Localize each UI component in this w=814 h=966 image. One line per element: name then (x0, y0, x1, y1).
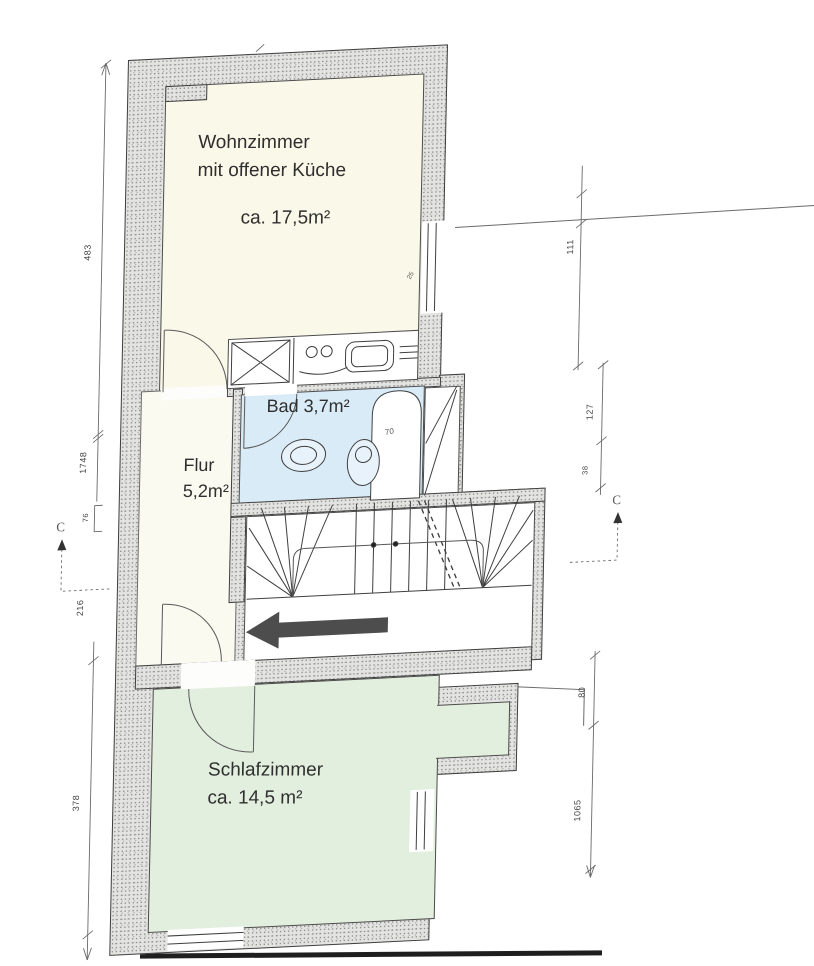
door-arc-wohnzimmer (163, 327, 228, 392)
direction-arrow (246, 606, 389, 650)
label-flur: Flur 5,2m² (183, 452, 230, 504)
door-arcs (155, 324, 298, 757)
building: Wohnzimmer mit offener Küche ca. 17,5m² … (128, 60, 129, 61)
flur-name: Flur (183, 452, 230, 478)
dim-378: 378 (71, 786, 83, 821)
section-line-left (61, 547, 112, 591)
burner-icon (321, 346, 332, 358)
washbasin-icon (281, 438, 326, 472)
dim-line-left-upper (92, 60, 111, 502)
label-wohnzimmer: Wohnzimmer mit offener Küche (197, 129, 347, 184)
burner-icon (306, 346, 317, 358)
wohnzimmer-name-line2: mit offener Küche (197, 156, 346, 184)
dim-76: 76 (81, 500, 93, 535)
dim-line-right-mid (595, 361, 608, 496)
kitchen-fixtures (231, 332, 418, 387)
bathtub-icon (371, 390, 422, 501)
wohnzimmer-name-line1: Wohnzimmer (198, 129, 347, 157)
door-arc-flur (161, 601, 222, 664)
section-marker-left: C (56, 519, 65, 535)
section-arrow-left (57, 539, 66, 550)
label-schlafzimmer: Schlafzimmer ca. 14,5 m² (207, 756, 323, 811)
stair-direction-dashed (417, 499, 463, 591)
door-arc-schlafzimmer (187, 686, 254, 755)
schlafzimmer-name: Schlafzimmer (208, 756, 324, 784)
label-bad: Bad 3,7m² (266, 393, 350, 419)
dim-38: 38 (580, 453, 592, 488)
dim-216: 216 (75, 591, 87, 626)
sink-icon (345, 340, 394, 372)
exterior-step-line (518, 684, 585, 729)
dim-bracket-76 (94, 505, 103, 531)
dim-1748: 1748 (78, 445, 90, 480)
dim-111: 111 (565, 230, 577, 265)
dim-483: 483 (82, 235, 94, 270)
dim-line-left-lower (82, 641, 99, 960)
section-line-right (567, 522, 618, 562)
floor-plan: Wohnzimmer mit offener Küche ca. 17,5m² … (0, 0, 814, 966)
shaft-hatch (425, 386, 457, 496)
dim-line-right-upper (573, 166, 587, 371)
top-wall-tick (256, 44, 264, 51)
section-arrow-right (613, 512, 622, 523)
dim-80: 80 (576, 675, 588, 710)
dim-1065: 1065 (572, 793, 584, 828)
window-lines (167, 223, 437, 944)
label-wohnzimmer-area: ca. 17,5m² (240, 204, 330, 232)
dim-bathtub-70: 70 (384, 426, 394, 437)
flur-area: 5,2m² (183, 478, 230, 504)
stair-handrail (293, 540, 484, 597)
staircase (247, 495, 534, 599)
dim-127: 127 (584, 395, 596, 430)
section-marker-right: C (612, 492, 621, 508)
schlafzimmer-area: ca. 14,5 m² (207, 784, 323, 812)
